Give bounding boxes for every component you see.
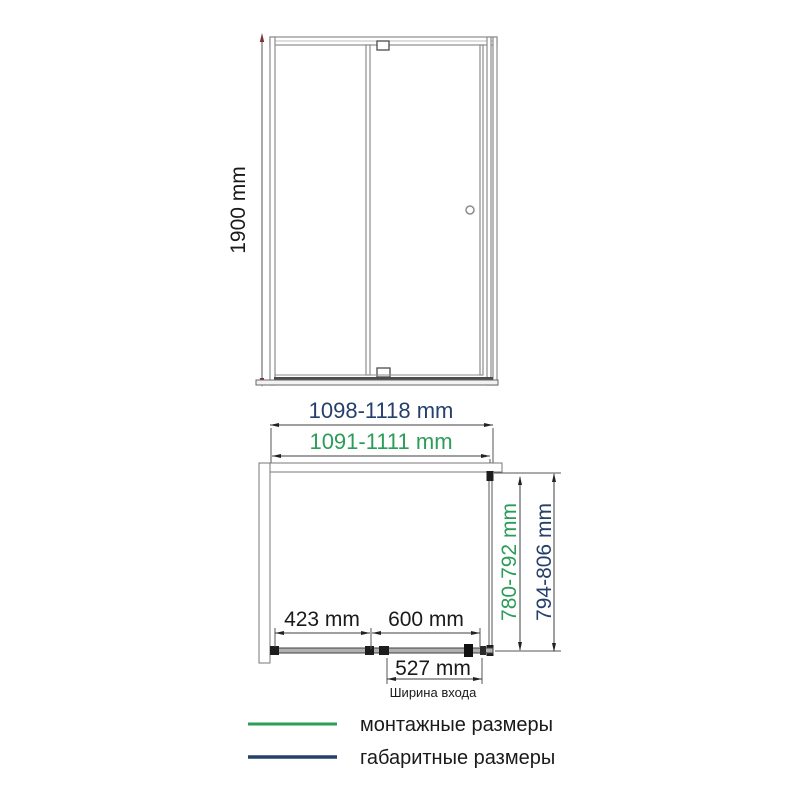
door-handle-knob xyxy=(466,206,474,214)
legend-mounting-label: монтажные размеры xyxy=(360,714,553,736)
entry-width-caption: Ширина входа xyxy=(390,685,477,700)
panel-divider xyxy=(366,45,370,375)
legend-overall-label: габаритные размеры xyxy=(360,747,555,769)
dimension-drawing-page: 1900 mm 1098-1118 mm 1091-1111 mm xyxy=(0,0,800,800)
plan-door-handle xyxy=(464,644,473,657)
front-view: 1900 mm xyxy=(227,33,498,387)
entry-width-label: 527 mm xyxy=(395,657,471,680)
mounting-depth-arrow-top xyxy=(518,476,522,485)
door-panel-arrow-right xyxy=(471,631,480,635)
overall-depth-arrow-top xyxy=(552,473,556,482)
legend: монтажные размеры габаритные размеры xyxy=(248,714,555,769)
right-wall-profile xyxy=(493,37,497,385)
overall-width-arrow-right xyxy=(484,423,493,427)
door-panel-label: 600 mm xyxy=(388,608,464,631)
track-magnet-profile-left xyxy=(365,646,374,655)
door-leading-edge xyxy=(480,45,483,375)
shower-tray-base xyxy=(256,380,498,385)
fixed-panel-arrow-left xyxy=(275,631,284,635)
overall-depth-label: 794-806 mm xyxy=(533,503,556,621)
glass-connector-top xyxy=(487,471,494,481)
bottom-guide xyxy=(377,368,390,377)
shower-door-drawing: 1900 mm 1098-1118 mm 1091-1111 mm xyxy=(0,0,800,800)
entry-width-arrow-right xyxy=(473,677,482,681)
overall-width-arrow-left xyxy=(270,423,279,427)
height-dim-label: 1900 mm xyxy=(227,166,250,254)
plan-back-wall xyxy=(259,463,502,472)
mounting-width-arrow-left xyxy=(272,454,281,458)
mounting-depth-label: 780-792 mm xyxy=(498,503,521,621)
mounting-depth-arrow-bottom xyxy=(518,642,522,651)
frame-right-post xyxy=(487,37,491,385)
height-dim-arrow-top xyxy=(260,33,264,42)
door-panel-arrow-left xyxy=(372,631,381,635)
mounting-width-arrow-right xyxy=(481,454,490,458)
frame-left-post xyxy=(270,37,275,385)
overall-width-label: 1098-1118 mm xyxy=(309,398,454,423)
fixed-panel-arrow-right xyxy=(361,631,370,635)
track-end-cap-left xyxy=(270,646,279,655)
top-roller xyxy=(377,41,389,50)
mounting-width-label: 1091-1111 mm xyxy=(309,429,452,454)
plan-side-glass xyxy=(489,473,492,652)
track-end-cap-right xyxy=(480,646,486,655)
track-magnet-profile-right xyxy=(379,646,389,655)
fixed-panel-label: 423 mm xyxy=(284,608,360,631)
plan-side-wall xyxy=(259,463,270,663)
plan-view: 1098-1118 mm 1091-1111 mm 780-792 mm 794… xyxy=(259,398,561,700)
